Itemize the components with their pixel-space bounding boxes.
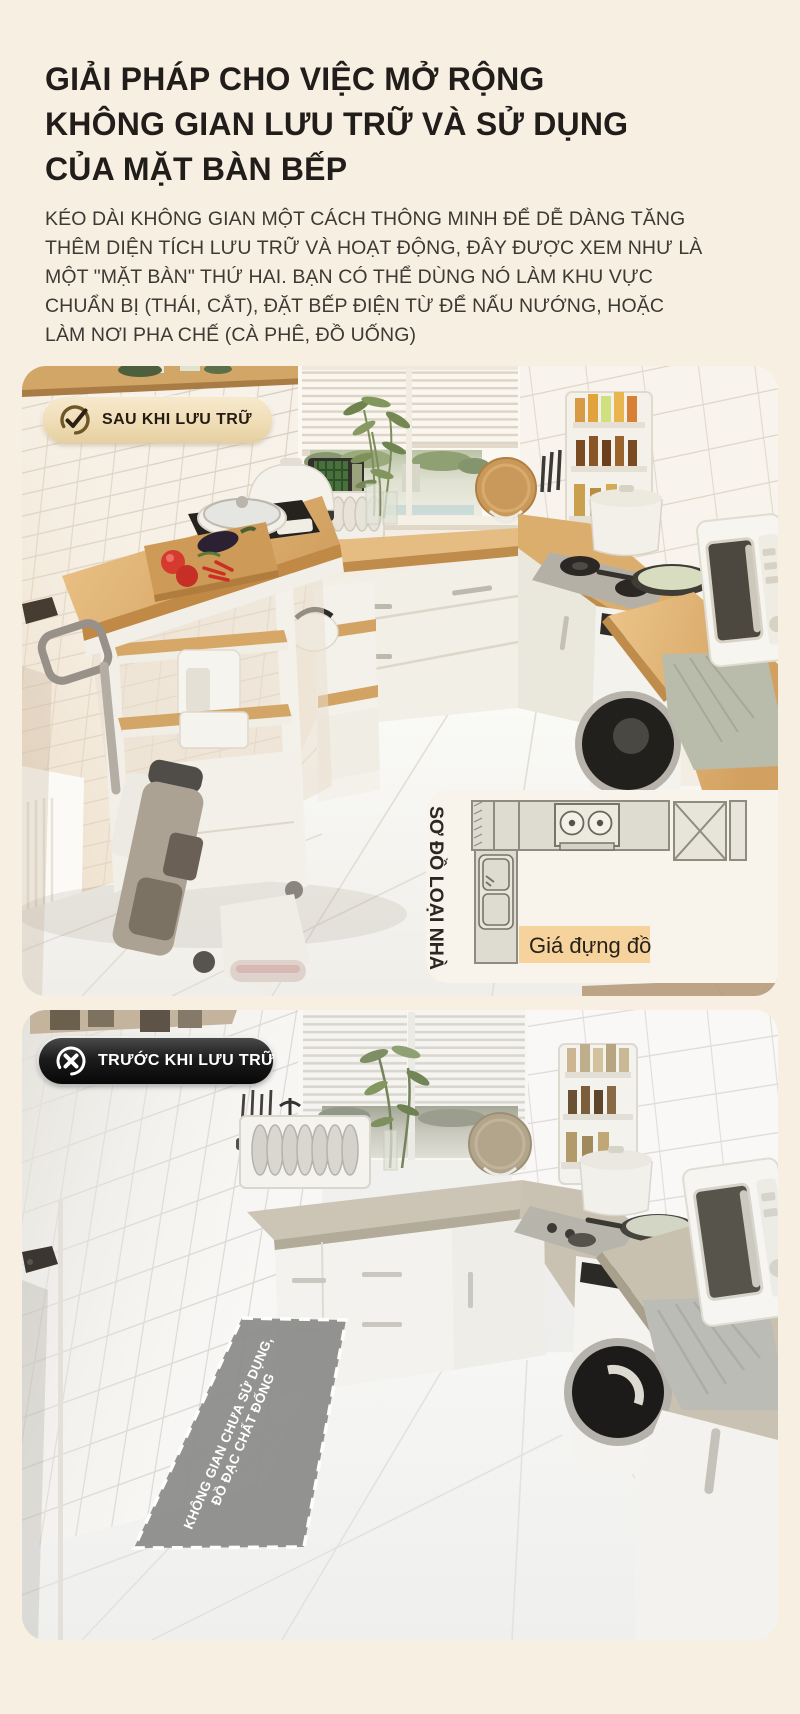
svg-text:SƠ ĐỒ LOẠI NHÀ: SƠ ĐỒ LOẠI NHÀ bbox=[425, 806, 449, 970]
svg-text:Giá đựng đồ: Giá đựng đồ bbox=[529, 933, 651, 958]
